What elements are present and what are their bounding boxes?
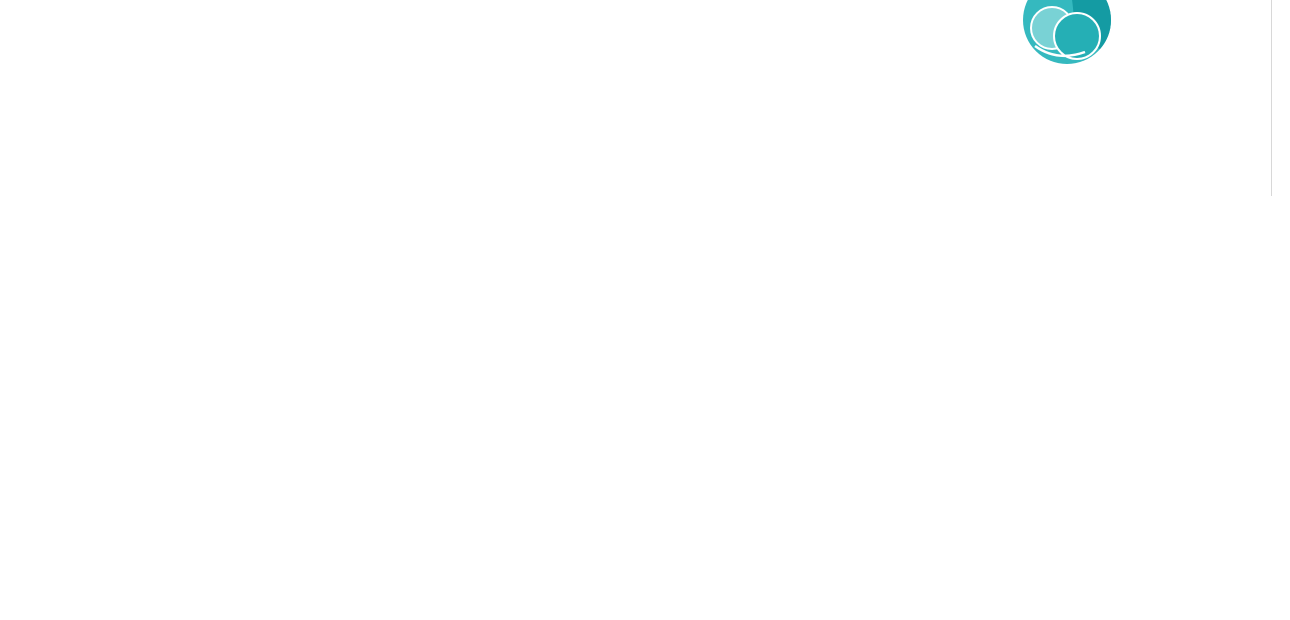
logo-petal <box>1054 13 1100 59</box>
bloque4-floor-plan <box>0 250 1290 620</box>
brand-logo-flower-icon <box>1015 0 1115 74</box>
page-edge-rule <box>1271 0 1272 196</box>
site-location-map <box>375 0 835 198</box>
